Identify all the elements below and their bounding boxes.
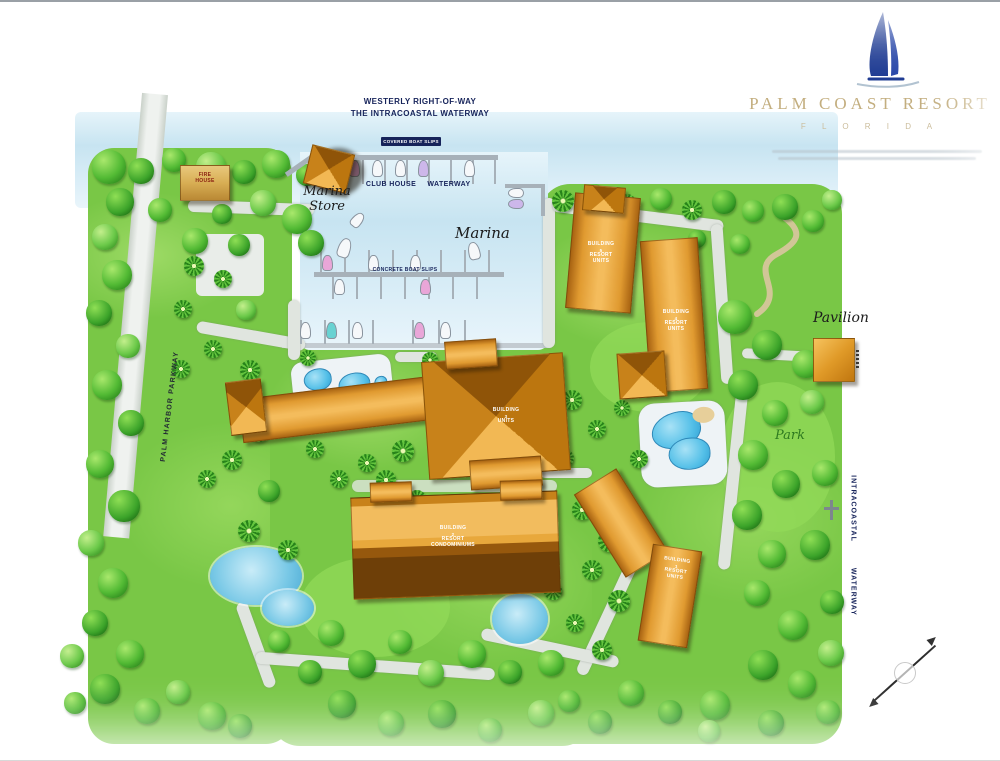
tree xyxy=(298,660,322,684)
tree xyxy=(498,660,522,684)
tree xyxy=(92,150,126,184)
boat xyxy=(440,322,451,339)
building-2-jut xyxy=(500,479,543,500)
palm-tree xyxy=(330,470,348,488)
pond-south xyxy=(492,594,548,644)
garden-trail xyxy=(745,214,815,324)
boat xyxy=(508,188,524,198)
right-of-way-line2: THE INTRACOASTAL WATERWAY xyxy=(300,108,540,120)
tree xyxy=(166,680,190,704)
tree xyxy=(528,700,554,726)
tree xyxy=(650,188,672,210)
tree xyxy=(718,300,752,334)
concrete-boat-slips-label: CONCRETE BOAT SLIPS xyxy=(350,267,460,273)
tree xyxy=(318,620,344,646)
tree xyxy=(738,440,768,470)
path xyxy=(543,198,555,348)
palm-tree xyxy=(278,540,298,560)
tree xyxy=(232,160,256,184)
compass-ring xyxy=(894,662,916,684)
dock-finger xyxy=(380,275,382,299)
channel-marker-icon xyxy=(830,500,833,520)
tree xyxy=(700,690,730,720)
tree xyxy=(816,700,840,724)
tree xyxy=(86,300,112,326)
dock-finger xyxy=(476,275,478,299)
palm-tree xyxy=(588,420,606,438)
boat xyxy=(508,199,524,209)
palm-tree xyxy=(204,340,222,358)
palm-tree xyxy=(238,520,260,542)
dock-finger xyxy=(494,158,496,184)
palm-tree xyxy=(198,470,216,488)
boat xyxy=(418,160,429,177)
boat xyxy=(420,279,431,295)
tree xyxy=(428,700,456,728)
tree xyxy=(812,460,838,486)
tree xyxy=(730,234,750,254)
tree xyxy=(90,674,120,704)
palm-tree xyxy=(300,350,316,366)
tree xyxy=(92,224,118,250)
path xyxy=(288,300,300,360)
pavilion-side-marks xyxy=(856,350,859,368)
tree xyxy=(728,370,758,400)
boat xyxy=(300,322,311,339)
tree xyxy=(802,210,824,232)
tree xyxy=(778,610,808,640)
dock-finger xyxy=(404,275,406,299)
logo-fine-print-line xyxy=(772,150,982,153)
tree xyxy=(558,690,580,712)
boat xyxy=(372,160,383,177)
palm-tree xyxy=(184,256,204,276)
boat xyxy=(352,322,363,339)
club-house-label: CLUB HOUSE xyxy=(360,181,422,188)
tree xyxy=(742,200,764,222)
tree xyxy=(538,650,564,676)
tree xyxy=(348,650,376,678)
right-of-way-title: WESTERLY RIGHT-OF-WAY THE INTRACOASTAL W… xyxy=(300,96,540,120)
tree xyxy=(752,330,782,360)
east-pier xyxy=(541,184,545,216)
tree xyxy=(818,640,844,666)
palm-tree xyxy=(174,300,192,318)
tree xyxy=(744,580,770,606)
boat xyxy=(395,160,406,177)
tree xyxy=(418,660,444,686)
tree xyxy=(60,644,84,668)
building-3-west-cap xyxy=(225,378,267,436)
tree xyxy=(298,230,324,256)
pond-southwest-small xyxy=(262,590,314,626)
palm-tree xyxy=(582,560,602,580)
tree xyxy=(328,690,356,718)
tree xyxy=(198,702,226,730)
building-5-label: BUILDING5 RESORTUNITS xyxy=(566,242,636,264)
tree xyxy=(148,198,172,222)
tree xyxy=(182,228,208,254)
building-3-north-jut xyxy=(444,338,498,370)
lagoon-pool xyxy=(668,437,712,471)
dock-finger xyxy=(348,320,350,344)
boat xyxy=(326,322,337,339)
east-pier xyxy=(505,184,545,188)
tree xyxy=(772,194,798,220)
tree xyxy=(388,630,412,654)
tree xyxy=(618,680,644,706)
fire-house-building: FIRE HOUSE xyxy=(180,165,230,201)
building-3-label: BUILDING3 UNITS xyxy=(471,408,541,425)
dock-finger xyxy=(356,275,358,299)
tree xyxy=(788,670,816,698)
tree xyxy=(378,710,404,736)
tree xyxy=(258,480,280,502)
palm-tree xyxy=(358,454,376,472)
palm-tree xyxy=(566,614,584,632)
resort-site-map: FIRE HOUSE BUILDING5 RESORTUNITS BUILDIN… xyxy=(0,0,1000,761)
tree xyxy=(116,334,140,358)
seawall xyxy=(282,343,548,348)
north-compass xyxy=(866,634,942,714)
tree xyxy=(748,650,778,680)
boat xyxy=(414,322,425,339)
tree xyxy=(712,190,736,214)
palm-tree xyxy=(240,360,260,380)
palm-tree xyxy=(214,270,232,288)
tree xyxy=(64,692,86,714)
tree xyxy=(108,490,140,522)
pavilion-label: Pavilion xyxy=(813,310,869,326)
tree xyxy=(128,158,154,184)
tree xyxy=(250,190,276,216)
lagoon-pool-deck xyxy=(638,400,728,488)
boat xyxy=(464,160,475,177)
tree xyxy=(212,204,232,224)
waterway-label: WATERWAY xyxy=(418,181,480,188)
tree xyxy=(658,700,682,724)
building-4-label: BUILDING4 RESORTUNITS xyxy=(641,310,711,332)
palm-tree xyxy=(630,450,648,468)
resort-brand-tagline: F L O R I D A xyxy=(742,122,998,131)
tree xyxy=(732,500,762,530)
palm-tree xyxy=(222,450,242,470)
tree xyxy=(86,450,114,478)
marina-store-label: Marina Store xyxy=(298,184,356,214)
palm-tree xyxy=(306,440,324,458)
park-label: Park xyxy=(775,428,805,443)
tree xyxy=(92,370,122,400)
building-2-jut xyxy=(370,481,413,502)
tree xyxy=(134,698,160,724)
pool-sand-patch xyxy=(692,406,715,423)
tree xyxy=(822,190,842,210)
tree xyxy=(82,610,108,636)
building-5-gable xyxy=(582,184,626,214)
resort-brand-title: PALM COAST RESORT xyxy=(742,94,998,114)
palm-tree xyxy=(614,400,630,416)
tree xyxy=(102,260,132,290)
intracoastal-waterway-label: INTRACOASTAL WATERWAY xyxy=(850,461,857,631)
palm-tree xyxy=(552,190,574,212)
palm-tree xyxy=(682,200,702,220)
palm-tree xyxy=(608,590,630,612)
tree xyxy=(116,640,144,668)
dock-finger xyxy=(488,250,490,274)
intracoastal-word: INTRACOASTAL xyxy=(850,475,857,542)
waterway-word: WATERWAY xyxy=(850,568,857,616)
fire-house-label: HOUSE xyxy=(181,179,229,185)
tree xyxy=(228,714,252,738)
tree xyxy=(758,540,786,568)
tree xyxy=(588,710,612,734)
tree xyxy=(820,590,844,614)
marina-label: Marina xyxy=(455,224,510,242)
tree xyxy=(268,630,290,652)
tree xyxy=(106,188,134,216)
dock-finger xyxy=(372,320,374,344)
pavilion-building xyxy=(813,338,855,382)
palm-tree xyxy=(592,640,612,660)
tree xyxy=(800,390,824,414)
building-4-wing xyxy=(616,350,667,399)
boat xyxy=(334,279,345,295)
tree xyxy=(772,470,800,498)
right-of-way-line1: WESTERLY RIGHT-OF-WAY xyxy=(300,96,540,108)
tree xyxy=(228,234,250,256)
tree xyxy=(118,410,144,436)
tree xyxy=(98,568,128,598)
tree xyxy=(762,400,788,426)
dock-finger xyxy=(464,250,466,274)
tree xyxy=(478,718,502,742)
boat xyxy=(322,255,333,271)
logo-fine-print-line xyxy=(778,157,976,160)
tree xyxy=(78,530,104,556)
dock-finger xyxy=(452,275,454,299)
tree xyxy=(758,710,784,736)
tree xyxy=(458,640,486,668)
covered-boat-slips-sign: COVERED BOAT SLIPS xyxy=(381,137,441,146)
tree xyxy=(698,720,720,742)
tree xyxy=(800,530,830,560)
tree xyxy=(236,300,256,320)
sailboat-logo-icon xyxy=(843,8,923,94)
building-2-label: BUILDING2 RESORTCONDOMINIUMS xyxy=(408,526,498,548)
palm-tree xyxy=(392,440,414,462)
